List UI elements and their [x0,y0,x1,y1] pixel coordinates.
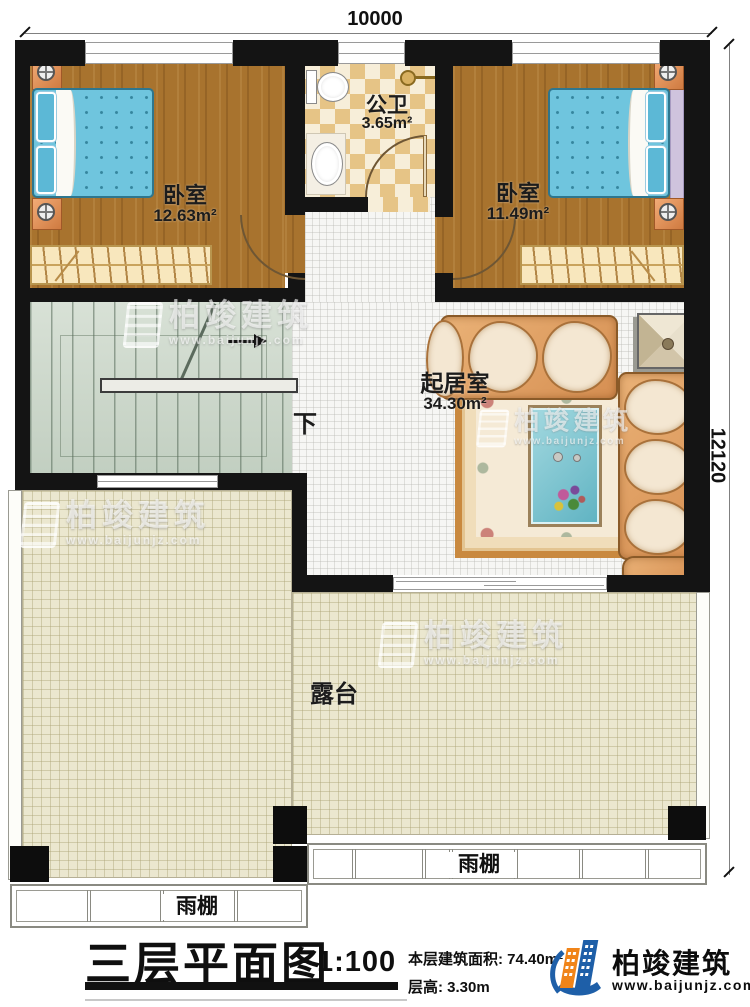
wardrobe-divider [55,250,80,281]
bed-left-sheet [56,90,76,196]
column [273,806,307,844]
stair-arrow-icon [254,334,267,348]
toilet-tank [306,70,317,104]
window [338,42,405,64]
wall [15,40,30,490]
toilet-bowl [317,72,349,102]
sofa-cushion [624,499,692,555]
canopy-right-label: 雨棚 [441,852,517,878]
stair-opening-outline [60,335,267,457]
bedroom-left-label: 卧室 [145,184,225,207]
bed-right-sheet [628,90,648,196]
rain-canopy-left: 雨棚 [10,884,308,928]
bathroom-door-sill [368,197,430,212]
nightstand [32,198,62,230]
sofa-cushion [624,439,692,495]
bedroom-right-area: 11.49m² [470,205,566,223]
wall [405,40,512,66]
shower-head-icon [400,70,416,86]
dimension-tick [706,26,717,37]
rain-canopy-right: 雨棚 [307,843,707,885]
brand-website: www.baijunjz.com [612,977,750,993]
sliding-door [393,577,607,590]
sliding-door-leaf [484,585,604,586]
nightstand [654,198,684,230]
title-underline [85,982,398,990]
table-decor [573,454,581,462]
door-leaf-bathroom [423,135,427,197]
bedroom-left-area: 12.63m² [137,207,233,225]
terrace-floor-right [292,592,697,835]
bedside-runner [670,86,684,200]
wall [435,40,453,217]
floor-height-text: 层高: 3.30m [408,976,490,997]
wall [15,288,292,302]
wall [292,575,393,592]
wall [305,197,368,212]
title-underline-thin [85,999,407,1001]
bedroom-right-door-sill [435,217,453,273]
wardrobe-divider [631,250,656,281]
window [85,42,233,64]
floor-area-text: 本层建筑面积: 74.40m² [408,948,563,969]
coffee-table [528,405,602,527]
lamp-icon [37,203,55,221]
shower-arm [414,76,435,79]
dimension-line-top [25,33,712,34]
brand-logo-icon [543,936,609,1002]
bathroom-area: 3.65m² [352,116,422,133]
living-room-label: 起居室 [410,371,500,395]
bathroom-label: 公卫 [352,95,422,117]
drawing-scale: 1:100 [317,946,396,979]
canopy-divider [579,849,583,879]
sofa-cushion [624,379,692,435]
wardrobe-right [520,245,684,285]
canopy-divider [422,849,426,879]
canopy-divider [352,849,356,879]
hallway-floor [305,197,435,302]
wall [435,288,710,302]
lamp-icon [659,203,677,221]
pillow [646,92,666,142]
floor-plan: 雨棚 雨棚 卧室 12.63m² 卧室 11.49m² 公卫 3.65m² 起居… [0,0,750,1007]
stairs-down-label: 下 [290,412,320,437]
wall [684,40,710,592]
canopy-frame [16,890,302,922]
sofa-cushion [542,321,612,393]
wall [607,575,684,592]
parapet-left [8,490,22,880]
bedroom-right-label: 卧室 [478,182,558,205]
flower-vase [545,474,591,520]
dimension-tick [19,26,30,37]
window [97,475,218,488]
window [512,42,660,64]
dimension-height-label: 12120 [706,421,729,491]
sliding-door-leaf [396,581,516,582]
canopy-divider [234,890,238,922]
column [668,806,706,840]
canopy-left-label: 雨棚 [162,894,232,920]
table-decor [553,452,563,462]
column [10,846,49,882]
canopy-divider [87,890,91,922]
canopy-divider [645,849,649,879]
sink-basin [311,142,343,186]
lamp-knob [662,338,674,350]
column [273,846,307,882]
pillow [646,146,666,194]
stair-handrail [100,378,298,393]
terrace-label: 露台 [306,682,362,707]
dimension-width-label: 10000 [330,8,420,31]
wall [285,40,305,215]
living-room-area: 34.30m² [415,395,495,413]
dimension-line-right [729,45,730,875]
pillow [36,92,56,142]
pillow [36,146,56,194]
parapet-right [696,592,710,839]
terrace-floor-left [22,490,292,878]
wardrobe-left [30,245,212,285]
stair-arrow-shaft [228,340,254,343]
brand-name: 柏竣建筑 [612,942,732,982]
